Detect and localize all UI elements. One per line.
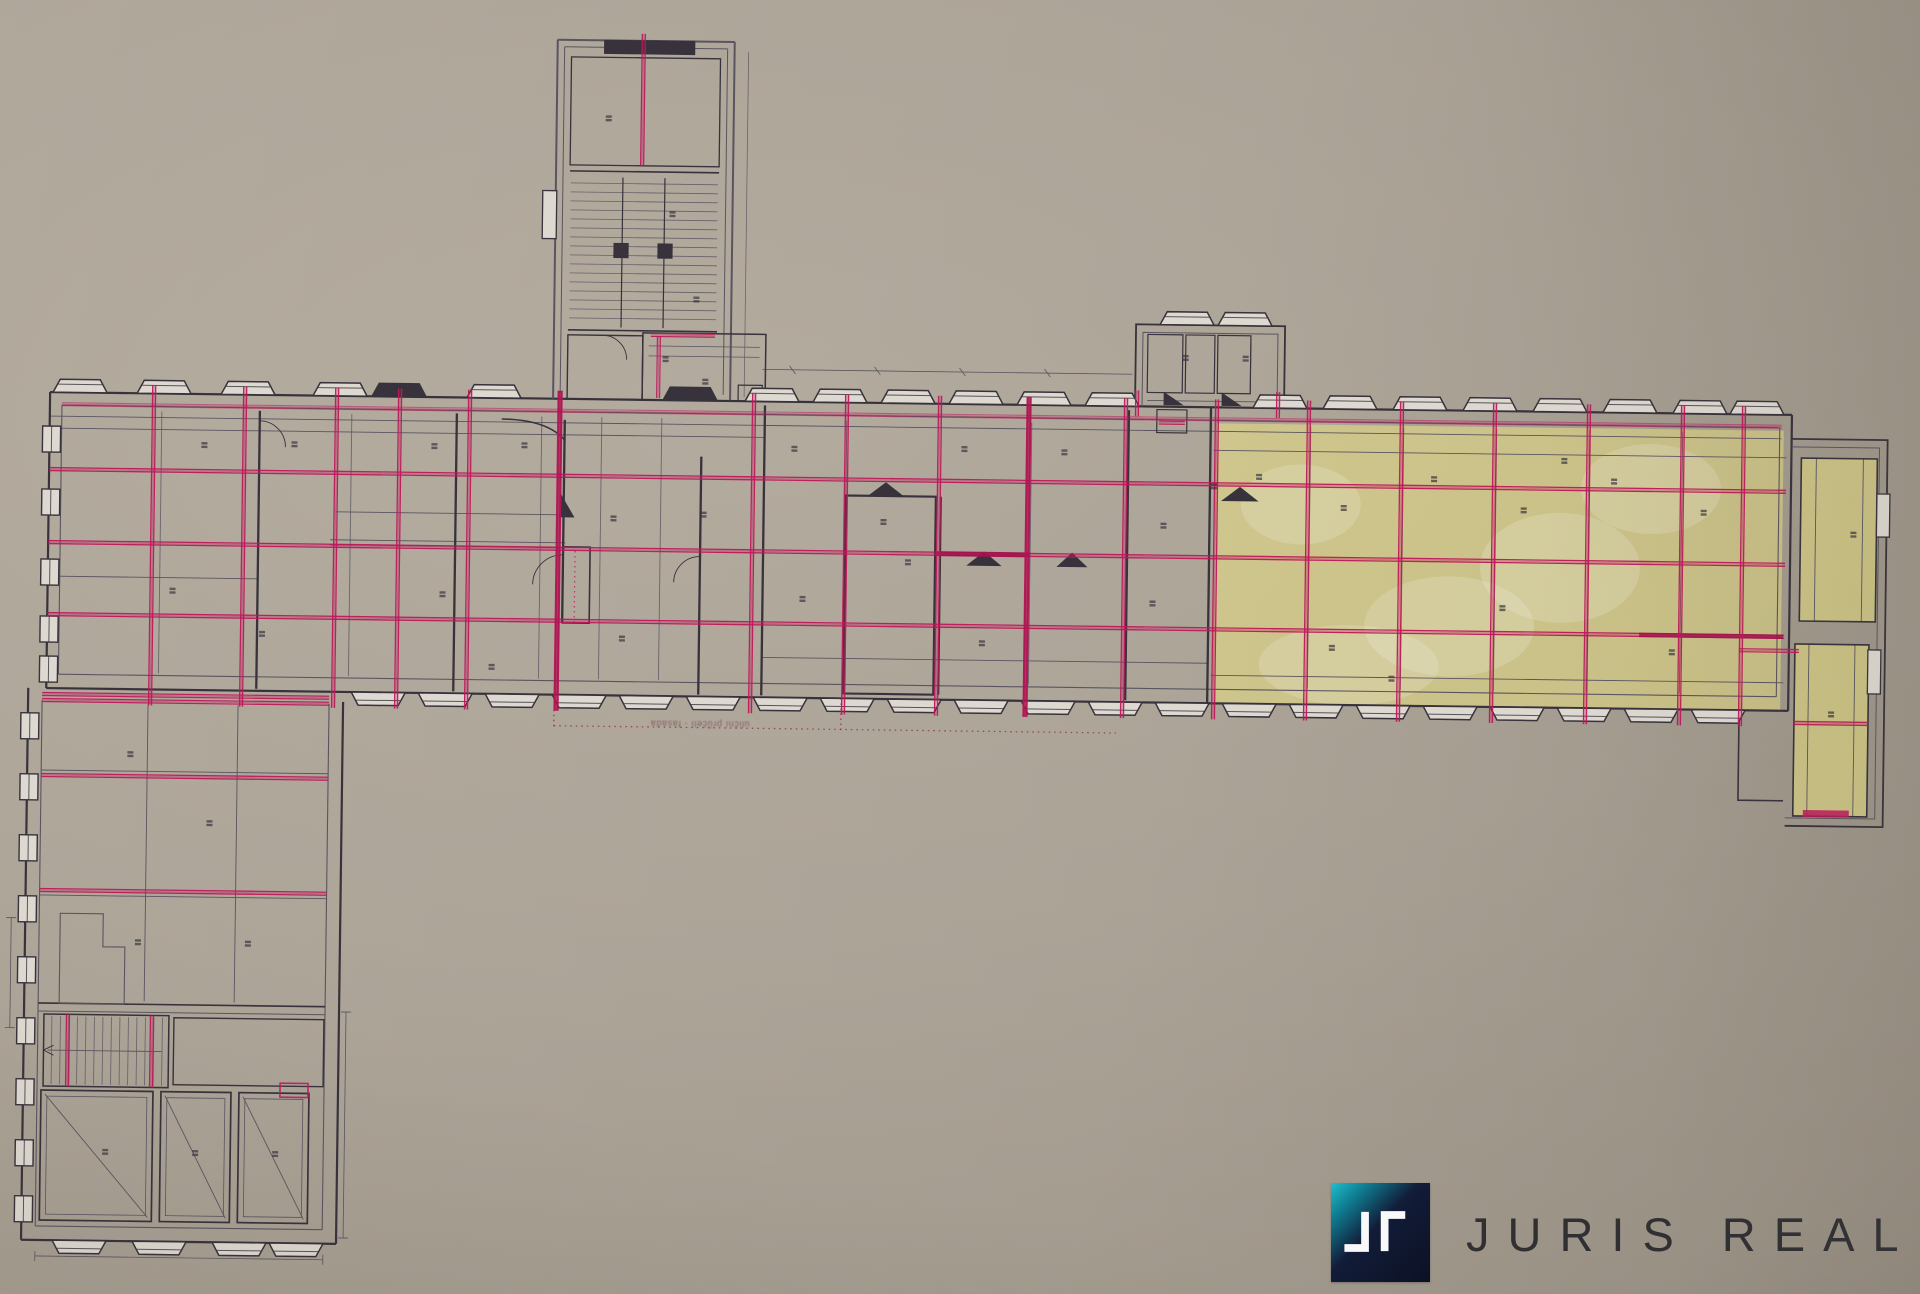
scanned-floorplan-page: uliční průčelí - fasáda JURISREAL	[0, 0, 1920, 1294]
brand-word-real: REAL	[1722, 1208, 1917, 1261]
logo-monogram-icon	[1331, 1183, 1430, 1282]
window-bumps	[14, 184, 1894, 1277]
juris-real-logo: JURISREAL	[1331, 1183, 1917, 1282]
floor-plan-drawing	[0, 0, 1920, 1294]
highlight-fills	[1212, 423, 1878, 817]
brand-word-juris: JURIS	[1466, 1208, 1692, 1261]
logo-brand-text: JURISREAL	[1466, 1207, 1917, 1262]
floor-plan-content	[2, 26, 1896, 1285]
